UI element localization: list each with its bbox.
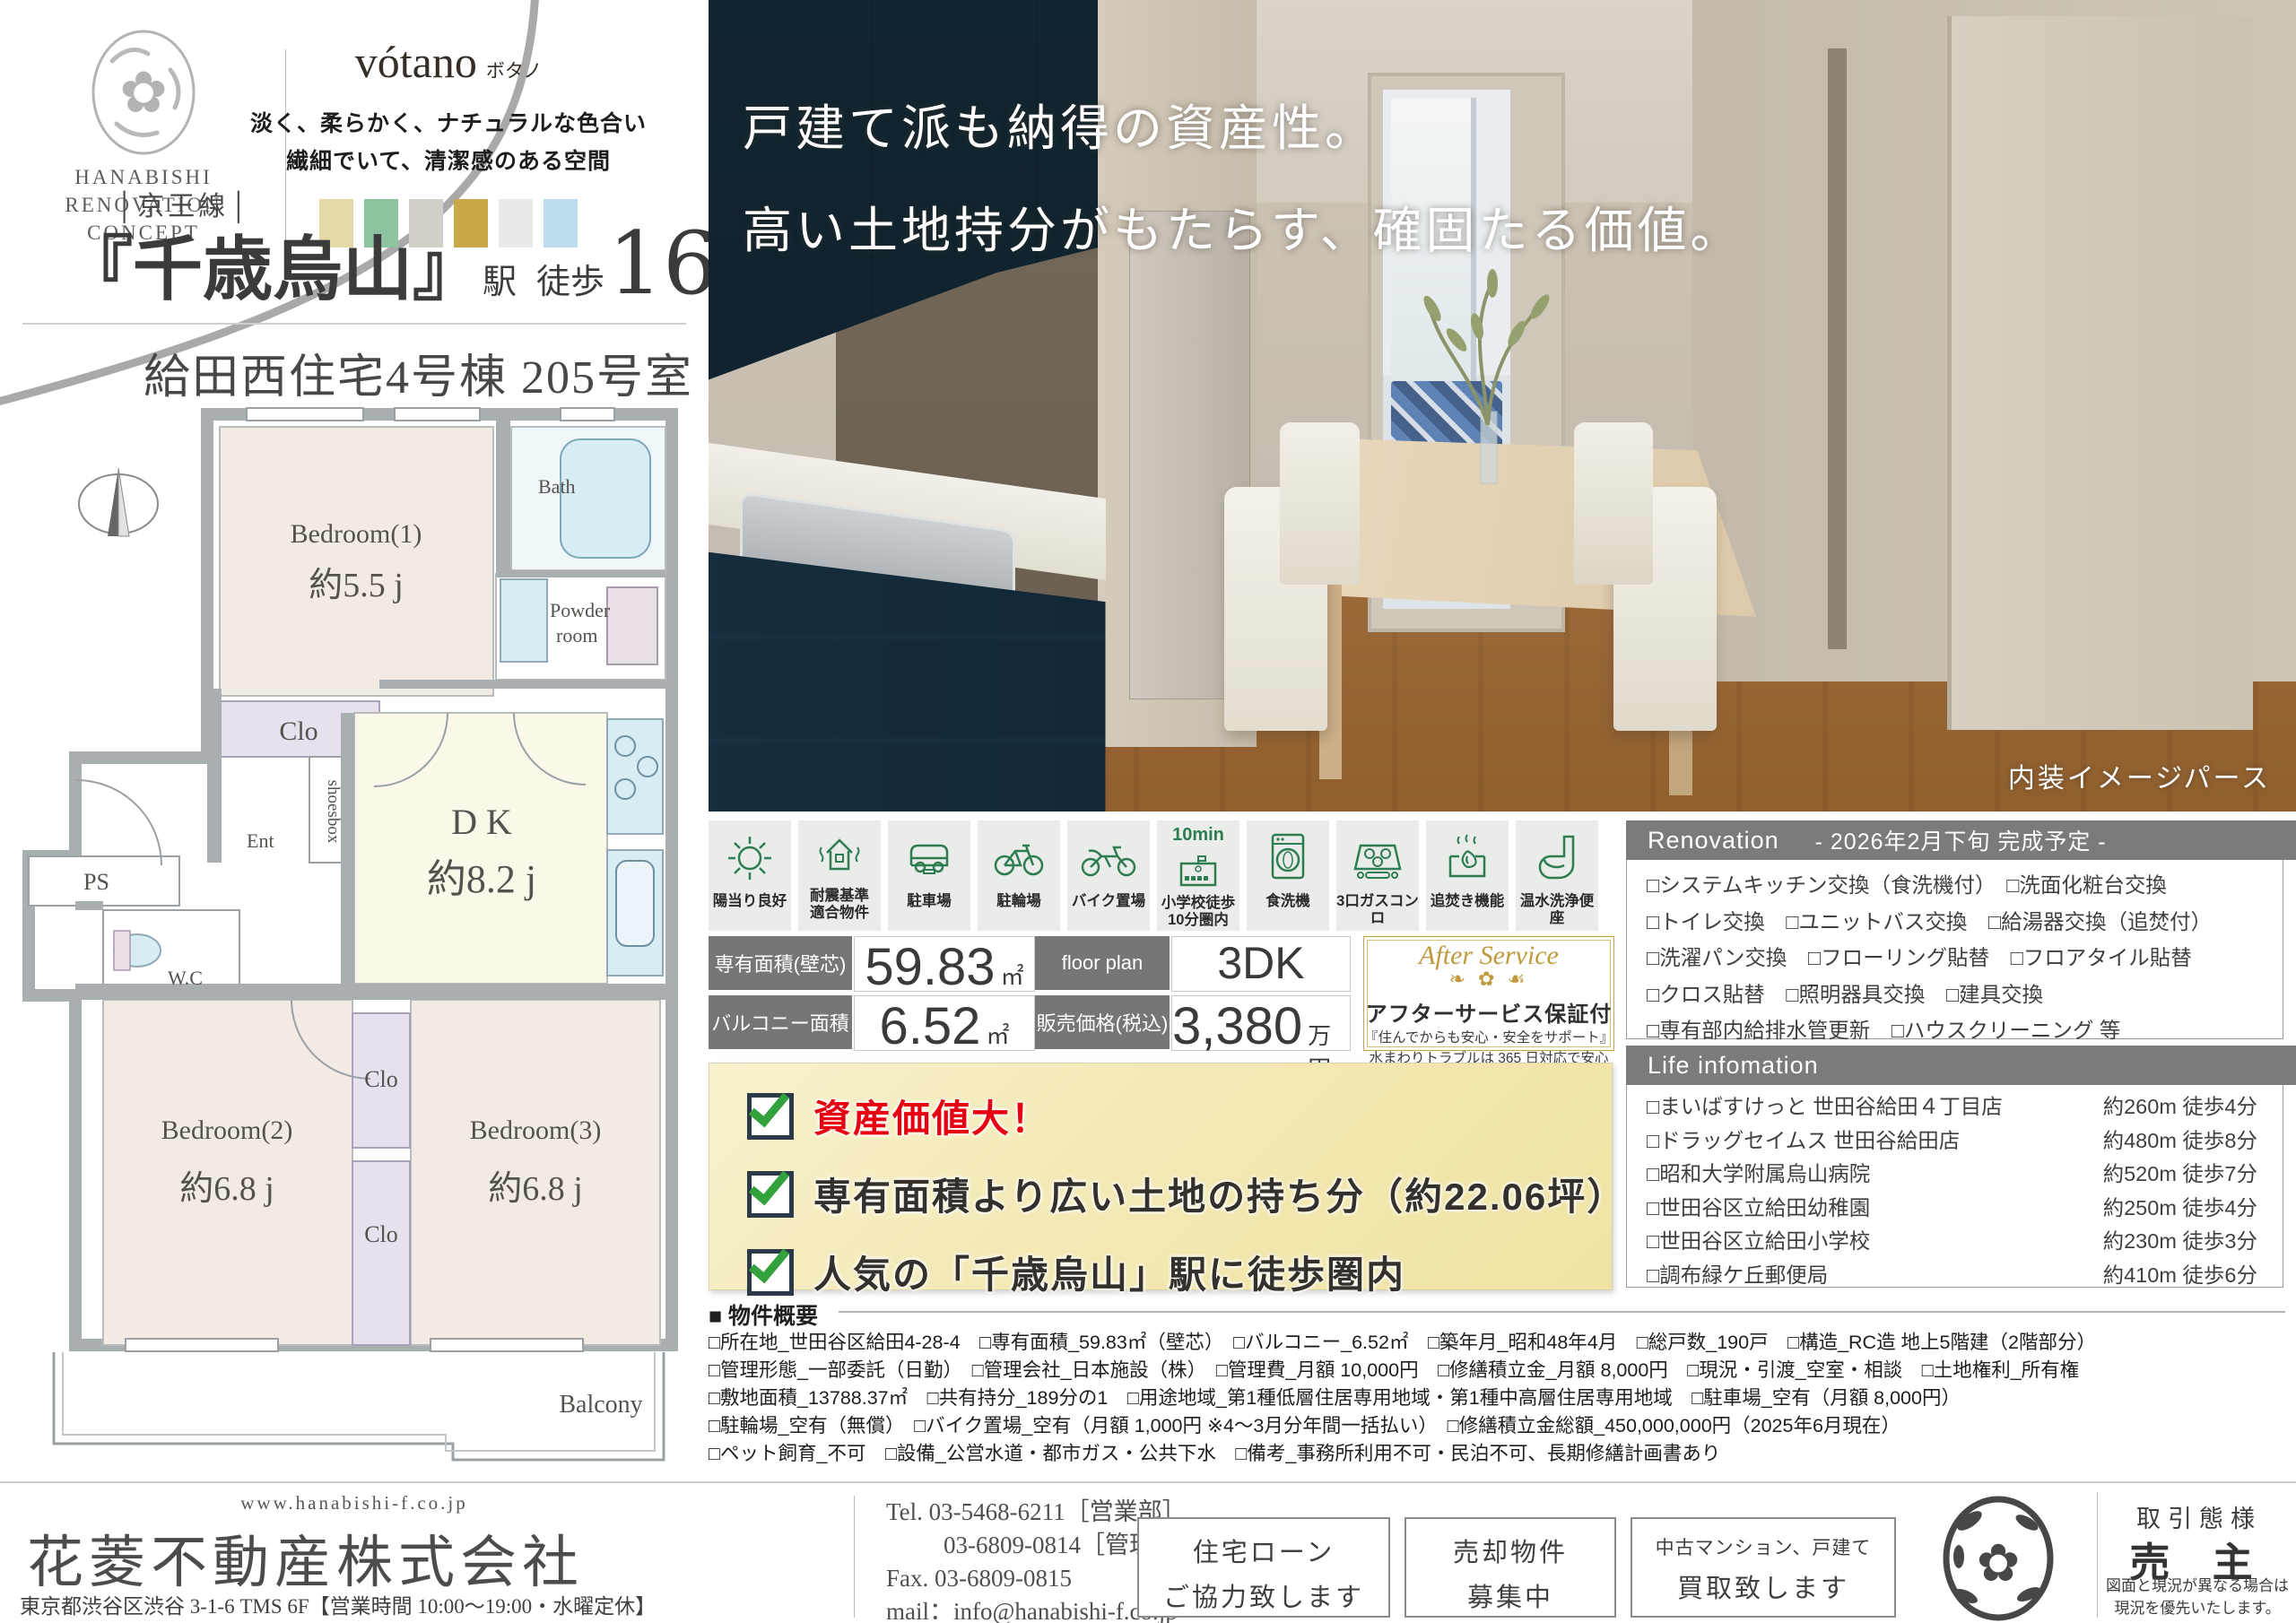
deal-note-line1: 図面と現況が異なる場合は: [2102, 1575, 2292, 1597]
life-info-body: □まいばすけっと 世田谷給田４丁目店 約260m 徒歩4分 □ドラッグセイムス …: [1626, 1085, 2283, 1288]
walk-minutes: 16: [608, 213, 717, 314]
purchase-box: 中古マンション、戸建て 買取致します: [1631, 1517, 1896, 1618]
life-place: □調布緑ケ丘郵便局: [1647, 1259, 1828, 1293]
life-distance: 約480m 徒歩8分: [2103, 1124, 2257, 1159]
life-info-row: □世田谷区立給田幼稚園 約250m 徒歩4分: [1647, 1192, 2257, 1226]
feature-label: 陽当り良好: [713, 893, 787, 909]
loan-box: 住宅ローン ご協力致します: [1137, 1517, 1390, 1618]
school-badge: 10min: [1157, 826, 1239, 844]
plan-label-ps: PS: [83, 869, 109, 895]
feature-tile-washlet: 温水洗浄便座: [1516, 820, 1598, 931]
highlight-text: 資産価値大！: [813, 1089, 1050, 1143]
overview-line: □駐輪場_空有（無償） □バイク置場_空有（月額 1,000円 ※4～3月分年間…: [709, 1412, 2287, 1440]
after-service-title: After Service: [1364, 941, 1613, 971]
life-place: □ドラッグセイムス 世田谷給田店: [1647, 1124, 1960, 1159]
feature-tile-earthquake: 耐震基準適合物件: [798, 820, 881, 931]
feature-tile-motorcycle: バイク置場: [1067, 820, 1150, 931]
company-name: 花菱不動産株式会社: [27, 1517, 584, 1599]
overview-line: □ペット飼育_不可 □設備_公営水道・都市ガス・公共下水 □備考_事務所利用不可…: [709, 1440, 2287, 1468]
plan-label-ent: Ent: [247, 829, 274, 852]
price-number: 3,380: [1172, 996, 1302, 1056]
highlights-box: 資産価値大！ 専有面積より広い土地の持ち分（約22.06坪） 人気の「千歳烏山」…: [709, 1063, 1613, 1290]
life-distance: 約520m 徒歩7分: [2103, 1158, 2257, 1192]
life-distance: 約250m 徒歩4分: [2103, 1192, 2257, 1226]
flyer-page: ✿ HANABISHI RENOVATION CONCEPT vótanoボタノ…: [0, 0, 2296, 1623]
feature-tile-sunny: 陽当り良好: [709, 820, 791, 931]
life-distance: 約260m 徒歩4分: [2103, 1090, 2257, 1124]
plan-label-clo1: Clo: [279, 716, 317, 746]
overview-title: ■ 物件概要: [709, 1298, 818, 1331]
concept-name: vótano: [355, 37, 477, 87]
life-info-header: Life infomation: [1626, 1046, 2296, 1085]
check-icon: [747, 1171, 794, 1218]
footer-emblem-icon: ✿: [1926, 1496, 2070, 1621]
svg-text:✿: ✿: [119, 60, 168, 125]
spec-plan-value: 3DK: [1171, 936, 1351, 992]
floor-plan: Bedroom(1) 約5.5 j Bath Powder room Clo s…: [22, 404, 691, 1466]
renovation-item: □専有部内給排水管更新 □ハウスクリーニング 等: [1647, 1012, 2283, 1049]
svg-text:✿: ✿: [1977, 1534, 2021, 1593]
feature-label: バイク置場: [1072, 893, 1145, 909]
plan-dk-area: [354, 713, 607, 984]
check-icon: [747, 1093, 794, 1140]
renovation-item: □システムキッチン交換（食洗機付） □洗面化粧台交換: [1647, 867, 2283, 904]
plan-label-dk: D K: [451, 802, 512, 842]
plan-label-clo3: Clo: [364, 1221, 398, 1247]
feature-label: 適合物件: [810, 905, 869, 921]
toilet-icon: [1532, 829, 1582, 887]
area-number: 59.83: [865, 937, 995, 997]
spec-area-label: 専有面積(壁芯): [709, 936, 852, 990]
life-info-row: □まいばすけっと 世田谷給田４丁目店 約260m 徒歩4分: [1647, 1090, 2257, 1124]
renovation-item: □洗濯パン交換 □フローリング貼替 □フロアタイル貼替: [1647, 940, 2283, 976]
feature-label: 温水洗浄便座: [1520, 893, 1595, 926]
seeking-box: 売却物件 募集中: [1405, 1517, 1616, 1618]
station-suffix: 駅: [483, 264, 517, 301]
highlight-row: 専有面積より広い土地の持ち分（約22.06坪）: [747, 1167, 1612, 1221]
feature-label: 追焚き機能: [1431, 893, 1505, 909]
plan-stove: [607, 719, 663, 834]
life-distance: 約230m 徒歩3分: [2103, 1225, 2257, 1259]
highlight-text: 専有面積より広い土地の持ち分（約22.06坪）: [813, 1167, 1626, 1221]
area-unit: ㎡: [1001, 959, 1024, 992]
overview-line: □管理形態_一部委託（日勤） □管理会社_日本施設（株） □管理費_月額 10,…: [709, 1357, 2287, 1384]
overview-rule: [839, 1311, 2285, 1313]
feature-tile-stove: 3口ガスコンロ: [1336, 820, 1419, 931]
plan-type: 3DK: [1217, 937, 1304, 989]
life-info-row: □昭和大学附属烏山病院 約520m 徒歩7分: [1647, 1158, 2257, 1192]
plan-label-bedroom1-size: 約5.5 j: [309, 567, 404, 604]
spec-balcony-label: バルコニー面積: [709, 995, 852, 1049]
spec-balcony-value: 6.52㎡: [854, 995, 1035, 1051]
life-place: □昭和大学附属烏山病院: [1647, 1158, 1870, 1192]
feature-tile-school: 10min 小学校徒歩10分圏内: [1157, 820, 1239, 931]
company-url: www.hanabishi-f.co.jp: [0, 1492, 709, 1515]
building-title: 給田西住宅4号棟 205号室: [143, 339, 693, 406]
plan-bedroom1-area: [220, 427, 493, 696]
life-place: □世田谷区立給田小学校: [1647, 1225, 1870, 1259]
deal-note: 図面と現況が異なる場合は 現況を優先いたします。: [2102, 1575, 2292, 1619]
concept-copy-2: 繊細でいて、清潔感のある空間: [242, 143, 655, 179]
spec-area-value: 59.83㎡: [854, 936, 1035, 992]
footer-divider: [0, 1481, 2296, 1483]
renovation-header: Renovation - 2026年2月下旬 完成予定 -: [1626, 820, 2296, 860]
plan-label-shoesbox: shoesbox: [324, 780, 343, 844]
feature-tile-bicycle: 駐輪場: [978, 820, 1060, 931]
feature-label: 小学校徒歩: [1161, 895, 1236, 911]
photo-door-gap: [1828, 48, 1847, 649]
life-place: □世田谷区立給田幼稚園: [1647, 1192, 1870, 1226]
overview-line: □敷地面積_13788.37㎡ □共有持分_189分の1 □用途地域_第1種低層…: [709, 1384, 2287, 1412]
reheat-icon: [1441, 829, 1493, 887]
spec-plan-label: floor plan: [1035, 936, 1170, 990]
after-service-flourish-icon: ❧ ✿ ☙: [1364, 971, 1613, 987]
overview-line: □所在地_世田谷区給田4-28-4 □専有面積_59.83㎡（壁芯） □バルコニ…: [709, 1329, 2287, 1357]
hanabishi-emblem-icon: ✿: [85, 25, 202, 160]
renovation-item: □クロス貼替 □照明器具交換 □建具交換: [1647, 976, 2283, 1013]
concept-kana: ボタノ: [486, 61, 542, 82]
plan-label-wc: W.C: [168, 967, 203, 989]
station-name: 『千歳烏山』: [63, 230, 483, 308]
footer-divider-1: [854, 1496, 855, 1618]
highlight-row: 人気の「千歳烏山」駅に徒歩圏内: [747, 1245, 1612, 1299]
seeking-line1: 売却物件: [1406, 1532, 1614, 1569]
plan-label-clo2: Clo: [364, 1066, 398, 1092]
seeking-line2: 募集中: [1406, 1576, 1614, 1614]
station-divider: [22, 323, 686, 325]
photo-chair2: [1280, 422, 1360, 585]
spec-price-value: 3,380万円: [1171, 995, 1351, 1051]
car-icon: [902, 829, 956, 887]
feature-label: 10分圏内: [1168, 912, 1229, 928]
stove-icon: [1350, 829, 1405, 887]
quake-house-icon: [814, 829, 865, 881]
highlight-text: 人気の「千歳烏山」駅に徒歩圏内: [813, 1245, 1405, 1299]
after-service-heading: アフターサービス保証付: [1364, 996, 1613, 1028]
balcony-number: 6.52: [880, 996, 981, 1056]
loan-line2: ご協力致します: [1139, 1576, 1388, 1614]
bicycle-icon: [990, 829, 1048, 887]
loan-line1: 住宅ローン: [1139, 1532, 1388, 1569]
plan-label-bedroom3: Bedroom(3): [470, 1115, 602, 1145]
photo-headline-2: 高い土地持分がもたらす、確固たる価値。: [743, 190, 1744, 262]
plan-label-powder2: room: [556, 624, 597, 647]
check-icon: [747, 1249, 794, 1296]
photo-headline-1: 戸建て派も納得の資産性。: [743, 88, 1378, 160]
plan-closet3-area: [352, 1161, 410, 1345]
plan-label-bedroom2: Bedroom(2): [161, 1115, 293, 1145]
photo-caption: 内装イメージパース: [2008, 756, 2271, 795]
life-distance: 約410m 徒歩6分: [2103, 1259, 2257, 1293]
feature-tile-dishwasher: 食洗機: [1247, 820, 1329, 931]
plan-label-bath: Bath: [538, 475, 576, 498]
plan-label-powder1: Powder: [550, 599, 611, 621]
concept-name-row: vótanoボタノ: [296, 36, 601, 88]
concept-copy-1: 淡く、柔らかく、ナチュラルな色合い: [242, 106, 655, 142]
interior-photo: 戸建て派も納得の資産性。 高い土地持分がもたらす、確固たる価値。 内装イメージパ…: [709, 0, 2296, 811]
purchase-line2: 買取致します: [1632, 1567, 1894, 1605]
feature-label: 駐輪場: [996, 893, 1041, 909]
plan-label-bedroom1: Bedroom(1): [291, 519, 422, 549]
life-info-title: Life infomation: [1648, 1052, 1819, 1080]
feature-label: 駐車場: [907, 893, 952, 909]
feature-label: 耐震基準: [810, 888, 869, 904]
deal-note-line2: 現況を優先いたします。: [2102, 1597, 2292, 1619]
plan-label-bedroom2-size: 約6.8 j: [179, 1170, 274, 1208]
photo-sliding-door: [1947, 16, 2253, 730]
life-info-row: □世田谷区立給田小学校 約230m 徒歩3分: [1647, 1225, 2257, 1259]
feature-tile-parking: 駐車場: [888, 820, 970, 931]
overview-lines: □所在地_世田谷区給田4-28-4 □専有面積_59.83㎡（壁芯） □バルコニ…: [709, 1329, 2287, 1468]
after-service-line1: 『住んでからも安心・安全をサポート』: [1364, 1028, 1613, 1048]
life-place: □まいばすけっと 世田谷給田４丁目店: [1647, 1090, 2003, 1124]
highlight-row: 資産価値大！: [747, 1089, 1612, 1143]
company-address: 東京都渋谷区渋谷 3-1-6 TMS 6F【営業時間 10:00～19:00・水…: [20, 1589, 656, 1619]
purchase-line1: 中古マンション、戸建て: [1632, 1533, 1894, 1560]
motorcycle-icon: [1078, 829, 1139, 887]
feature-label: 3口ガスコンロ: [1336, 893, 1419, 926]
dishwasher-icon: [1264, 829, 1312, 887]
plan-label-dk-size: 約8.2 j: [427, 857, 536, 901]
walk-label: 徒歩: [536, 264, 604, 301]
renovation-body: □システムキッチン交換（食洗機付） □洗面化粧台交換□トイレ交換 □ユニットバス…: [1626, 860, 2283, 1039]
renovation-subtitle: - 2026年2月下旬 完成予定 -: [1815, 824, 2107, 856]
life-info-row: □調布緑ケ丘郵便局 約410m 徒歩6分: [1647, 1259, 2257, 1293]
footer-divider-2: [2097, 1492, 2098, 1618]
plan-label-bedroom3-size: 約6.8 j: [488, 1170, 583, 1208]
plan-label-balcony: Balcony: [559, 1391, 642, 1419]
station-headline: 『千歳烏山』駅 徒歩 16 分: [63, 213, 752, 314]
renovation-item: □トイレ交換 □ユニットバス交換 □給湯器交換（追焚付）: [1647, 904, 2283, 941]
after-service-box: After Service ❧ ✿ ☙ アフターサービス保証付 『住んでからも安…: [1363, 936, 1614, 1051]
feature-tile-reheat: 追焚き機能: [1426, 820, 1509, 931]
renovation-title: Renovation: [1648, 827, 1779, 855]
photo-chair4: [1574, 422, 1654, 585]
balcony-unit: ㎡: [986, 1018, 1009, 1051]
life-info-row: □ドラッグセイムス 世田谷給田店 約480m 徒歩8分: [1647, 1124, 2257, 1159]
sun-icon: [725, 829, 775, 887]
spec-price-label: 販売価格(税込): [1035, 995, 1170, 1049]
compass-icon: [79, 468, 158, 536]
feature-label: 食洗機: [1265, 893, 1310, 909]
school-icon: [1174, 853, 1222, 889]
